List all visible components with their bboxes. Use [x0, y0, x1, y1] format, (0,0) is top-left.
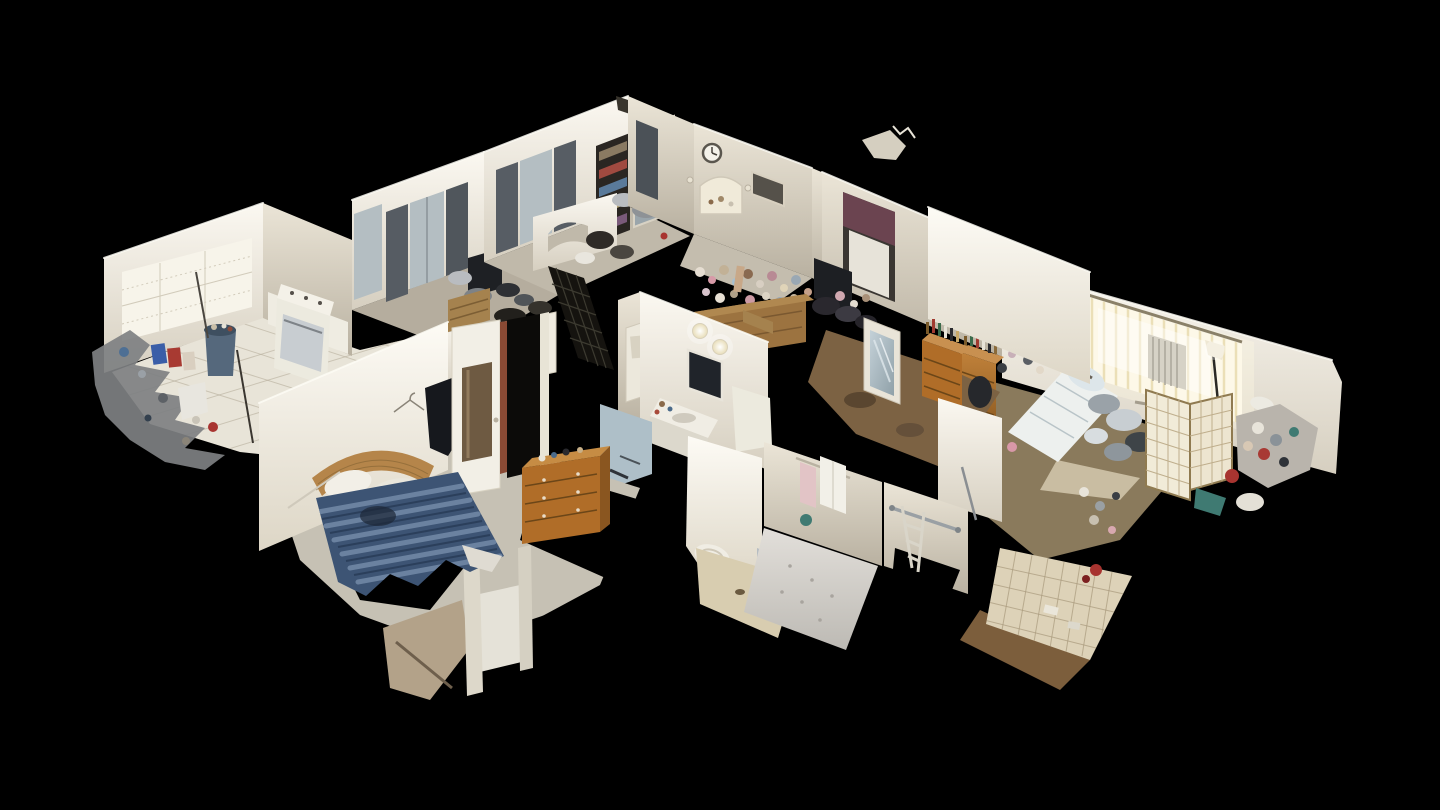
den-curtain-left	[386, 204, 408, 302]
dining-drape	[636, 120, 658, 200]
door-frame-edge	[540, 312, 549, 470]
stove	[274, 284, 334, 386]
bed-rail-2	[518, 545, 533, 671]
living-curtain-left	[496, 162, 518, 254]
dark-doorway	[507, 314, 540, 478]
dollhouse-3d-view[interactable]	[0, 0, 1440, 810]
hall-mirror-door	[864, 318, 900, 404]
viewer-stage	[0, 0, 1440, 810]
white-bag	[1236, 493, 1264, 511]
pink-teddy	[1007, 442, 1017, 452]
den-window	[354, 204, 382, 300]
wall-clock	[703, 144, 721, 162]
carpet-stain-2	[896, 423, 924, 437]
den-curtain-right	[446, 182, 468, 276]
arched-niche	[700, 177, 742, 214]
master-dresser	[522, 446, 610, 544]
pink-towel	[800, 462, 816, 508]
master-mirror-door	[452, 320, 500, 496]
floor-fan	[968, 376, 992, 408]
carpet-stain	[844, 392, 876, 408]
door-trim	[500, 321, 507, 474]
green-bottle	[800, 514, 812, 526]
wall-sconce-left	[687, 177, 693, 183]
red-item-on-tile	[1090, 564, 1102, 576]
wall-sconce-right	[745, 185, 751, 191]
blue-trash-bin	[204, 324, 236, 377]
red-bucket	[1225, 469, 1239, 483]
